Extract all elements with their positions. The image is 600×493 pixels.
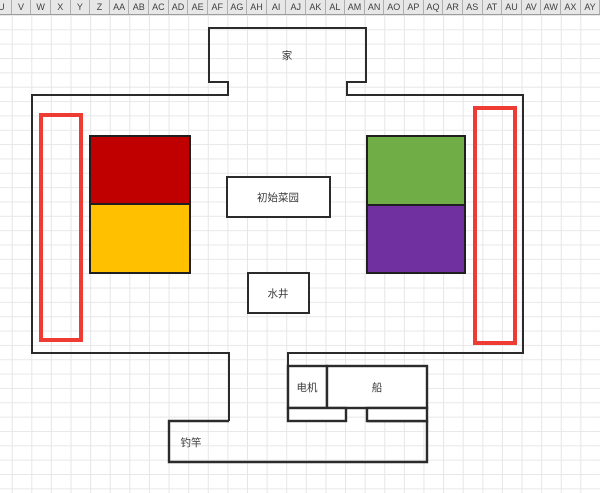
column-header-AK[interactable]: AK [306,0,326,14]
column-header-AB[interactable]: AB [129,0,149,14]
right-highlight-rect[interactable] [475,108,515,343]
column-header-AA[interactable]: AA [110,0,130,14]
column-header-W[interactable]: W [31,0,51,14]
column-header-AH[interactable]: AH [247,0,267,14]
column-header-Y[interactable]: Y [71,0,91,14]
column-header-AM[interactable]: AM [345,0,365,14]
purple-zone-block[interactable] [367,205,465,273]
column-header-X[interactable]: X [51,0,71,14]
home-label: 家 [282,49,293,62]
column-header-AX[interactable]: AX [561,0,581,14]
boat-dock-tab[interactable] [367,408,427,421]
column-header-row: UVWXYZAAABACADAEAFAGAHAIAJAKALAMANAOAPAQ… [0,0,600,15]
column-header-V[interactable]: V [12,0,32,14]
green-zone-block[interactable] [367,136,465,205]
column-header-AW[interactable]: AW [541,0,561,14]
well-label: 水井 [268,287,289,300]
column-header-AG[interactable]: AG [228,0,248,14]
red-zone-block[interactable] [90,136,190,204]
rod-label: 钓竿 [181,436,202,449]
column-header-AJ[interactable]: AJ [286,0,306,14]
column-header-U[interactable]: U [0,0,12,14]
column-header-AS[interactable]: AS [463,0,483,14]
boat-label: 船 [372,381,383,394]
column-header-AN[interactable]: AN [365,0,385,14]
column-header-AT[interactable]: AT [483,0,503,14]
column-header-Z[interactable]: Z [90,0,110,14]
column-header-AD[interactable]: AD [169,0,189,14]
column-header-AV[interactable]: AV [522,0,542,14]
motor-label: 电机 [297,381,318,394]
left-highlight-rect[interactable] [41,115,81,340]
motor-dock-tab[interactable] [288,408,346,421]
column-header-AP[interactable]: AP [404,0,424,14]
column-header-AO[interactable]: AO [385,0,405,14]
yellow-zone-block[interactable] [90,204,190,273]
garden-label: 初始菜园 [257,191,299,204]
column-header-AR[interactable]: AR [443,0,463,14]
fishing-rod-room-outline[interactable] [169,421,427,462]
column-header-AF[interactable]: AF [208,0,228,14]
base-map-drawing: 家 初始菜园 水井 电机 船 钓竿 [0,0,600,493]
spreadsheet-window: UVWXYZAAABACADAEAFAGAHAIAJAKALAMANAOAPAQ… [0,0,600,493]
column-header-AE[interactable]: AE [188,0,208,14]
column-header-AC[interactable]: AC [149,0,169,14]
column-header-AQ[interactable]: AQ [424,0,444,14]
column-header-AU[interactable]: AU [502,0,522,14]
column-header-AY[interactable]: AY [581,0,600,14]
column-header-AI[interactable]: AI [267,0,287,14]
column-header-AL[interactable]: AL [326,0,346,14]
